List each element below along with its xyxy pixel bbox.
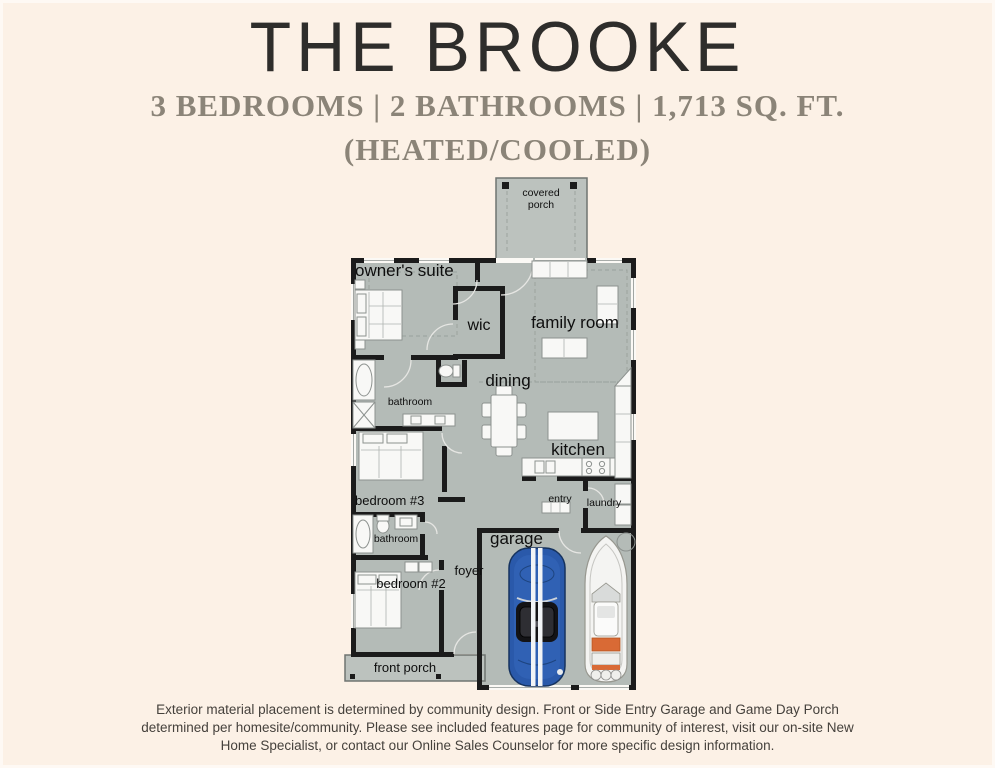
- boat-illustration: [585, 536, 627, 682]
- room-label-covered-porch-2: porch: [528, 199, 554, 211]
- room-label-bedroom-2: bedroom #2: [376, 576, 445, 591]
- kitchen-island: [548, 412, 598, 440]
- floor-plan-canvas: covered porch owner's suite wic family r…: [339, 174, 675, 706]
- page-title: THE BROOKE: [0, 6, 995, 87]
- stove: [582, 458, 610, 476]
- room-label-garage: garage: [490, 529, 543, 548]
- loveseat: [542, 338, 587, 358]
- toilet: [439, 365, 453, 377]
- room-label-foyer: foyer: [455, 563, 485, 578]
- room-label-front-porch: front porch: [374, 660, 436, 675]
- floor-plan: covered porch owner's suite wic family r…: [339, 174, 675, 706]
- room-label-owners-bathroom: bathroom: [388, 396, 433, 408]
- room-label-family-room: family room: [531, 313, 619, 332]
- room-label-hall-bathroom: bathroom: [374, 533, 419, 545]
- room-label-entry: entry: [548, 493, 572, 505]
- nightstand: [355, 280, 365, 289]
- room-label-laundry: laundry: [587, 497, 622, 509]
- disclaimer-text: Exterior material placement is determine…: [125, 701, 870, 755]
- plan-specs-heated-cooled: (HEATED/COOLED): [0, 132, 995, 168]
- room-label-dining: dining: [485, 371, 530, 390]
- kitchen-counter-right: [615, 386, 631, 478]
- sofa: [532, 261, 587, 278]
- room-label-wic: wic: [466, 317, 490, 334]
- nightstand: [355, 340, 365, 349]
- room-label-kitchen: kitchen: [551, 440, 605, 459]
- room-label-owners-suite: owner's suite: [355, 261, 454, 280]
- room-label-bedroom-3: bedroom #3: [355, 493, 424, 508]
- room-label-covered-porch-1: covered: [522, 187, 560, 199]
- sports-car-illustration: [509, 548, 565, 686]
- plan-specs: 3 BEDROOMS | 2 BATHROOMS | 1,713 SQ. FT.: [0, 88, 995, 124]
- hall-vanity: [395, 515, 417, 529]
